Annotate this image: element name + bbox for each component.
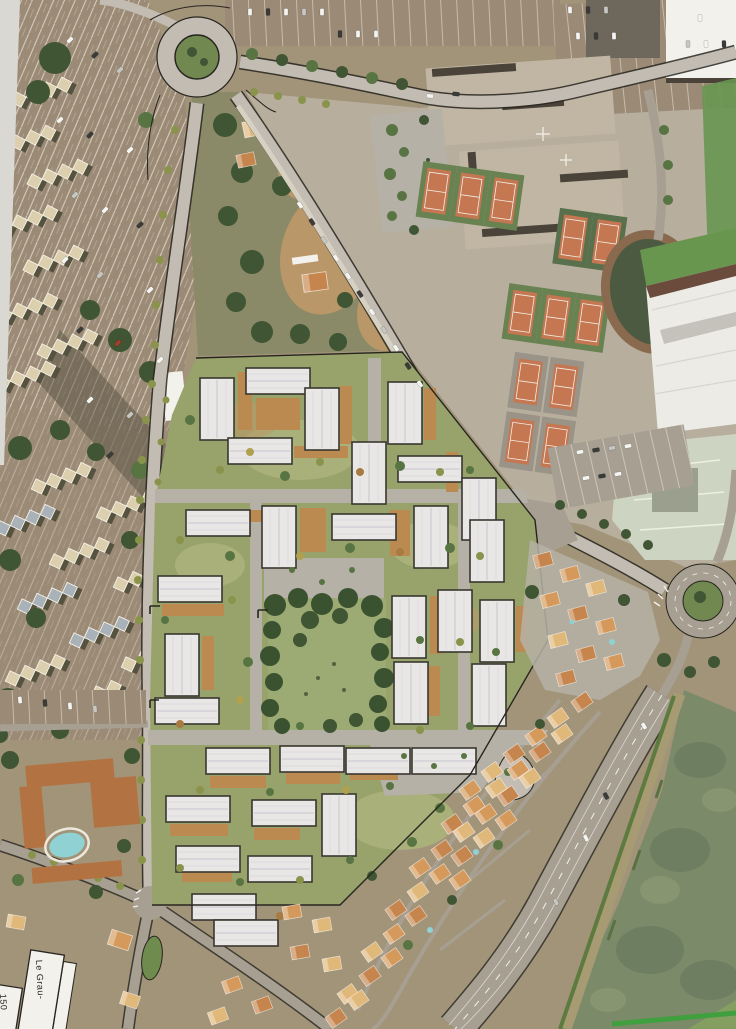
side-field	[702, 78, 736, 258]
aerial-masterplan-photo: Le Grau- 150	[0, 0, 736, 1029]
central-grove	[260, 588, 394, 734]
sports-hall	[646, 264, 736, 434]
parcel-label-left: 150	[0, 994, 9, 1011]
site-plan-canvas: Le Grau- 150	[0, 0, 736, 1029]
parcel-label-main: Le Grau-	[34, 960, 46, 1000]
school-dark-block	[586, 0, 660, 58]
